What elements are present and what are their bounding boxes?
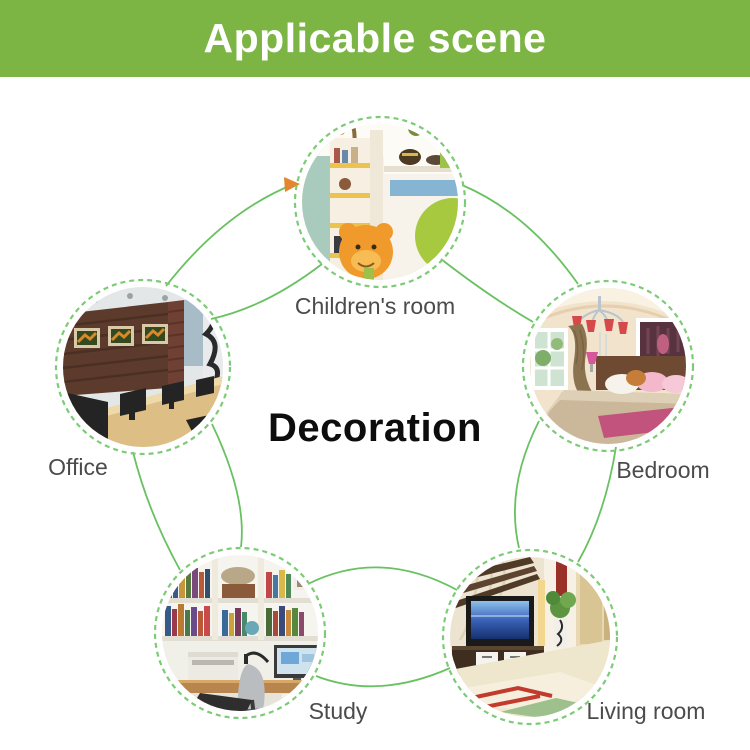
connector-children-bedroom-outer [462, 185, 578, 284]
connector-office-study-outer [133, 452, 180, 570]
office-photo [63, 287, 225, 447]
living-room-photo [450, 557, 612, 720]
study-circle [155, 548, 325, 718]
study-label: Study [309, 698, 368, 725]
bedroom-photo [530, 288, 690, 446]
bedroom-label: Bedroom [616, 457, 709, 484]
connector-bedroom-living-outer [578, 447, 616, 562]
connector-study-living-top [308, 567, 457, 590]
connector-office-children-outer [166, 184, 294, 286]
bedroom-circle [523, 281, 693, 451]
office-circle [56, 280, 230, 454]
living-room-label: Living room [587, 698, 706, 725]
connector-bedroom-living-inner [515, 421, 539, 548]
center-label: Decoration [268, 406, 482, 451]
office-label: Office [48, 454, 108, 481]
children-room-label: Children's room [295, 293, 455, 320]
connector-study-living-bottom [316, 668, 450, 686]
children-room-photo [300, 120, 491, 422]
applicable-scene-infographic: Applicable scene [0, 0, 750, 750]
scene-diagram [0, 0, 750, 750]
study-photo [160, 553, 322, 718]
children-room-circle [295, 117, 491, 422]
connector-office-study-inner [212, 424, 242, 547]
